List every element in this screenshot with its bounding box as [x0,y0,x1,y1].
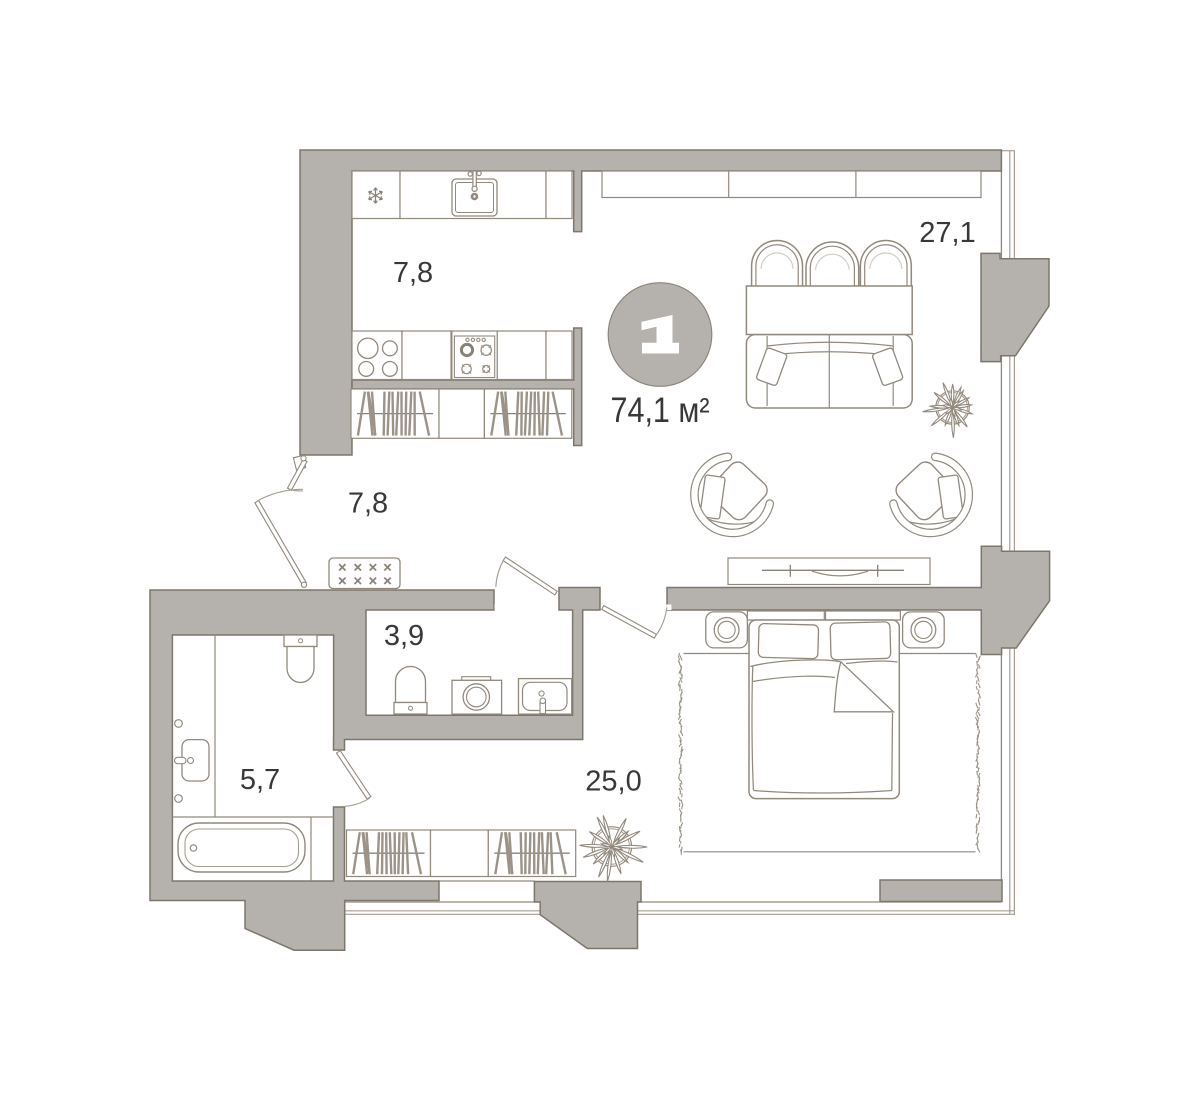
svg-text:5,7: 5,7 [240,764,280,796]
svg-text:3,9: 3,9 [384,620,424,652]
svg-text:27,1: 27,1 [919,217,975,249]
svg-text:7,8: 7,8 [393,257,433,289]
svg-text:74,1 м²: 74,1 м² [611,391,710,430]
svg-text:25,0: 25,0 [585,766,641,798]
svg-text:7,8: 7,8 [348,488,388,520]
